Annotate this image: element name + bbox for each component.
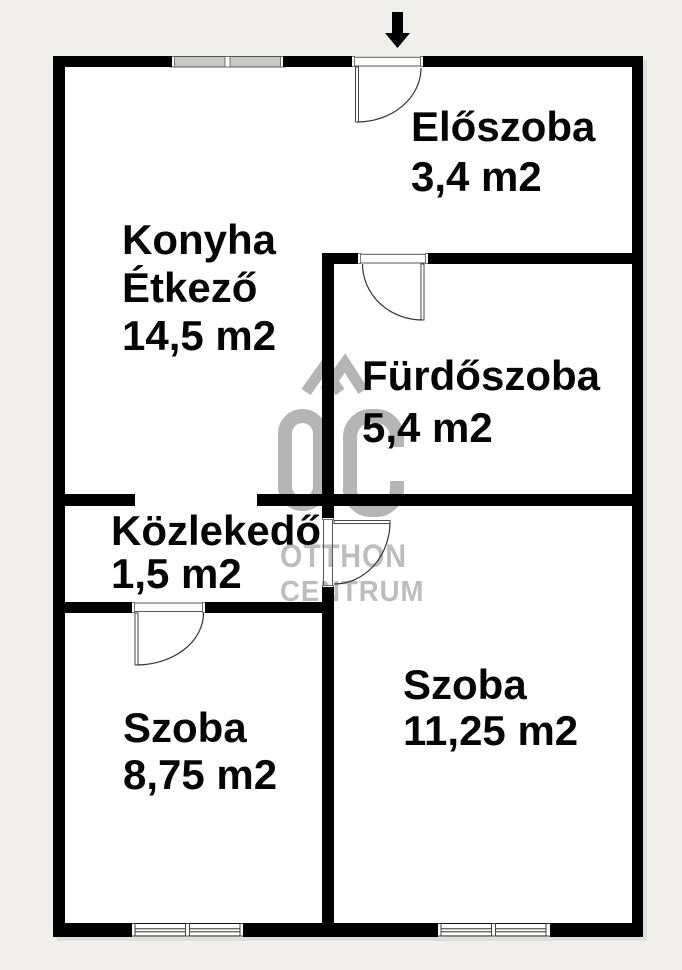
wall-outer-top xyxy=(423,56,643,67)
wall-bathroom xyxy=(428,253,643,264)
door-leaf xyxy=(135,613,138,665)
wall-middle xyxy=(257,494,643,506)
bathroom-door-symbol xyxy=(356,254,431,321)
room-area: 8,75 m2 xyxy=(123,751,277,798)
room-name: Szoba xyxy=(403,662,578,708)
window-top-symbol xyxy=(170,57,286,68)
room-name: Szoba xyxy=(123,704,277,751)
room-name: Fürdőszoba xyxy=(362,350,600,402)
hall-to-left-room-door-symbol xyxy=(130,603,208,666)
wall-outer-bottom xyxy=(243,923,438,937)
window-bottom-left-symbol xyxy=(130,924,245,937)
room-name: Közlekedő xyxy=(111,509,321,552)
room-name: Konyha xyxy=(122,216,276,264)
room-name: Előszoba xyxy=(411,102,595,152)
wall-outer-bottom xyxy=(550,923,643,937)
room-label-szoba-left: Szoba 8,75 m2 xyxy=(123,704,277,798)
door-leaf xyxy=(334,521,390,524)
room-label-szoba-right: Szoba 11,25 m2 xyxy=(403,662,578,754)
floor-plan: OTTHON CENTRUM xyxy=(0,0,682,970)
wall-hallway xyxy=(205,602,334,613)
window-bottom-right-symbol xyxy=(436,924,551,937)
hall-to-room-door-symbol xyxy=(323,515,391,591)
door-swing-arc xyxy=(363,264,423,320)
room-area: 1,5 m2 xyxy=(111,552,321,595)
door-swing-arc xyxy=(334,522,390,584)
wall-outer-top xyxy=(283,56,352,67)
wall-hallway xyxy=(53,602,132,613)
door-leaf xyxy=(356,67,359,122)
door-swing-arc xyxy=(137,613,204,665)
door-leaf xyxy=(421,264,424,320)
wall-bathroom xyxy=(322,253,358,264)
room-label-kozlekedo: Közlekedő 1,5 m2 xyxy=(111,509,321,595)
wall-outer-top xyxy=(53,56,172,67)
wall-inner-divider xyxy=(322,587,334,923)
room-label-konyha-etkezo: Konyha Étkező 14,5 m2 xyxy=(122,216,276,360)
room-area: 3,4 m2 xyxy=(411,152,595,202)
room-label-eloszoba: Előszoba 3,4 m2 xyxy=(411,102,595,202)
room-area: 14,5 m2 xyxy=(122,312,276,360)
wall-inner-divider xyxy=(322,253,334,518)
room-area: 5,4 m2 xyxy=(362,402,600,454)
room-label-furdoszoba: Fürdőszoba 5,4 m2 xyxy=(362,350,600,454)
room-name-2: Étkező xyxy=(122,264,276,312)
entrance-arrow-icon xyxy=(385,12,410,48)
wall-middle xyxy=(53,494,135,506)
wall-outer-bottom xyxy=(53,923,132,937)
room-area: 11,25 m2 xyxy=(403,708,578,754)
